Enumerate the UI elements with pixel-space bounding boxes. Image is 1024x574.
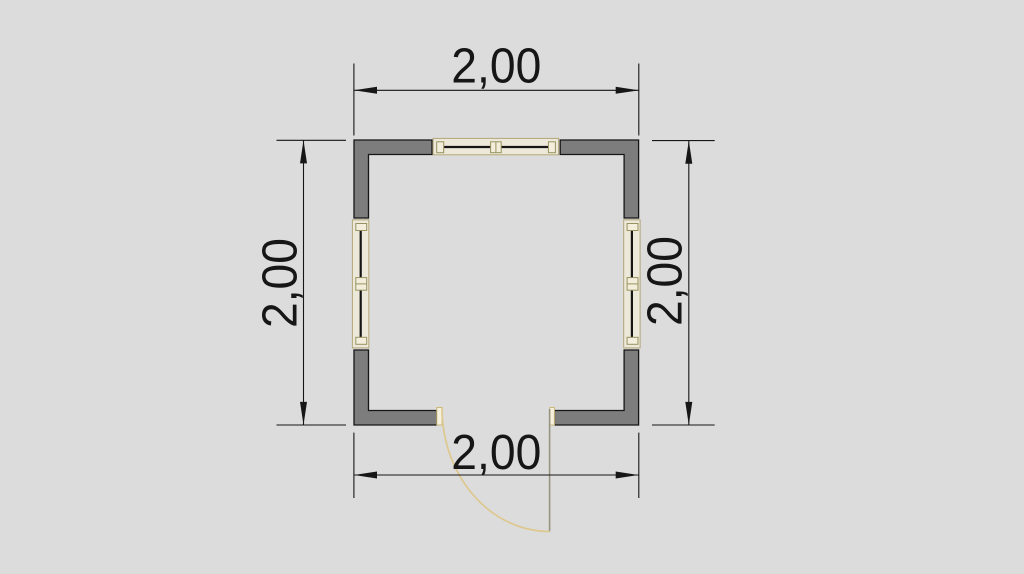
svg-text:2,00: 2,00 [254,238,308,328]
svg-text:2,00: 2,00 [451,426,541,480]
svg-text:2,00: 2,00 [639,236,693,326]
svg-text:2,00: 2,00 [451,40,541,94]
